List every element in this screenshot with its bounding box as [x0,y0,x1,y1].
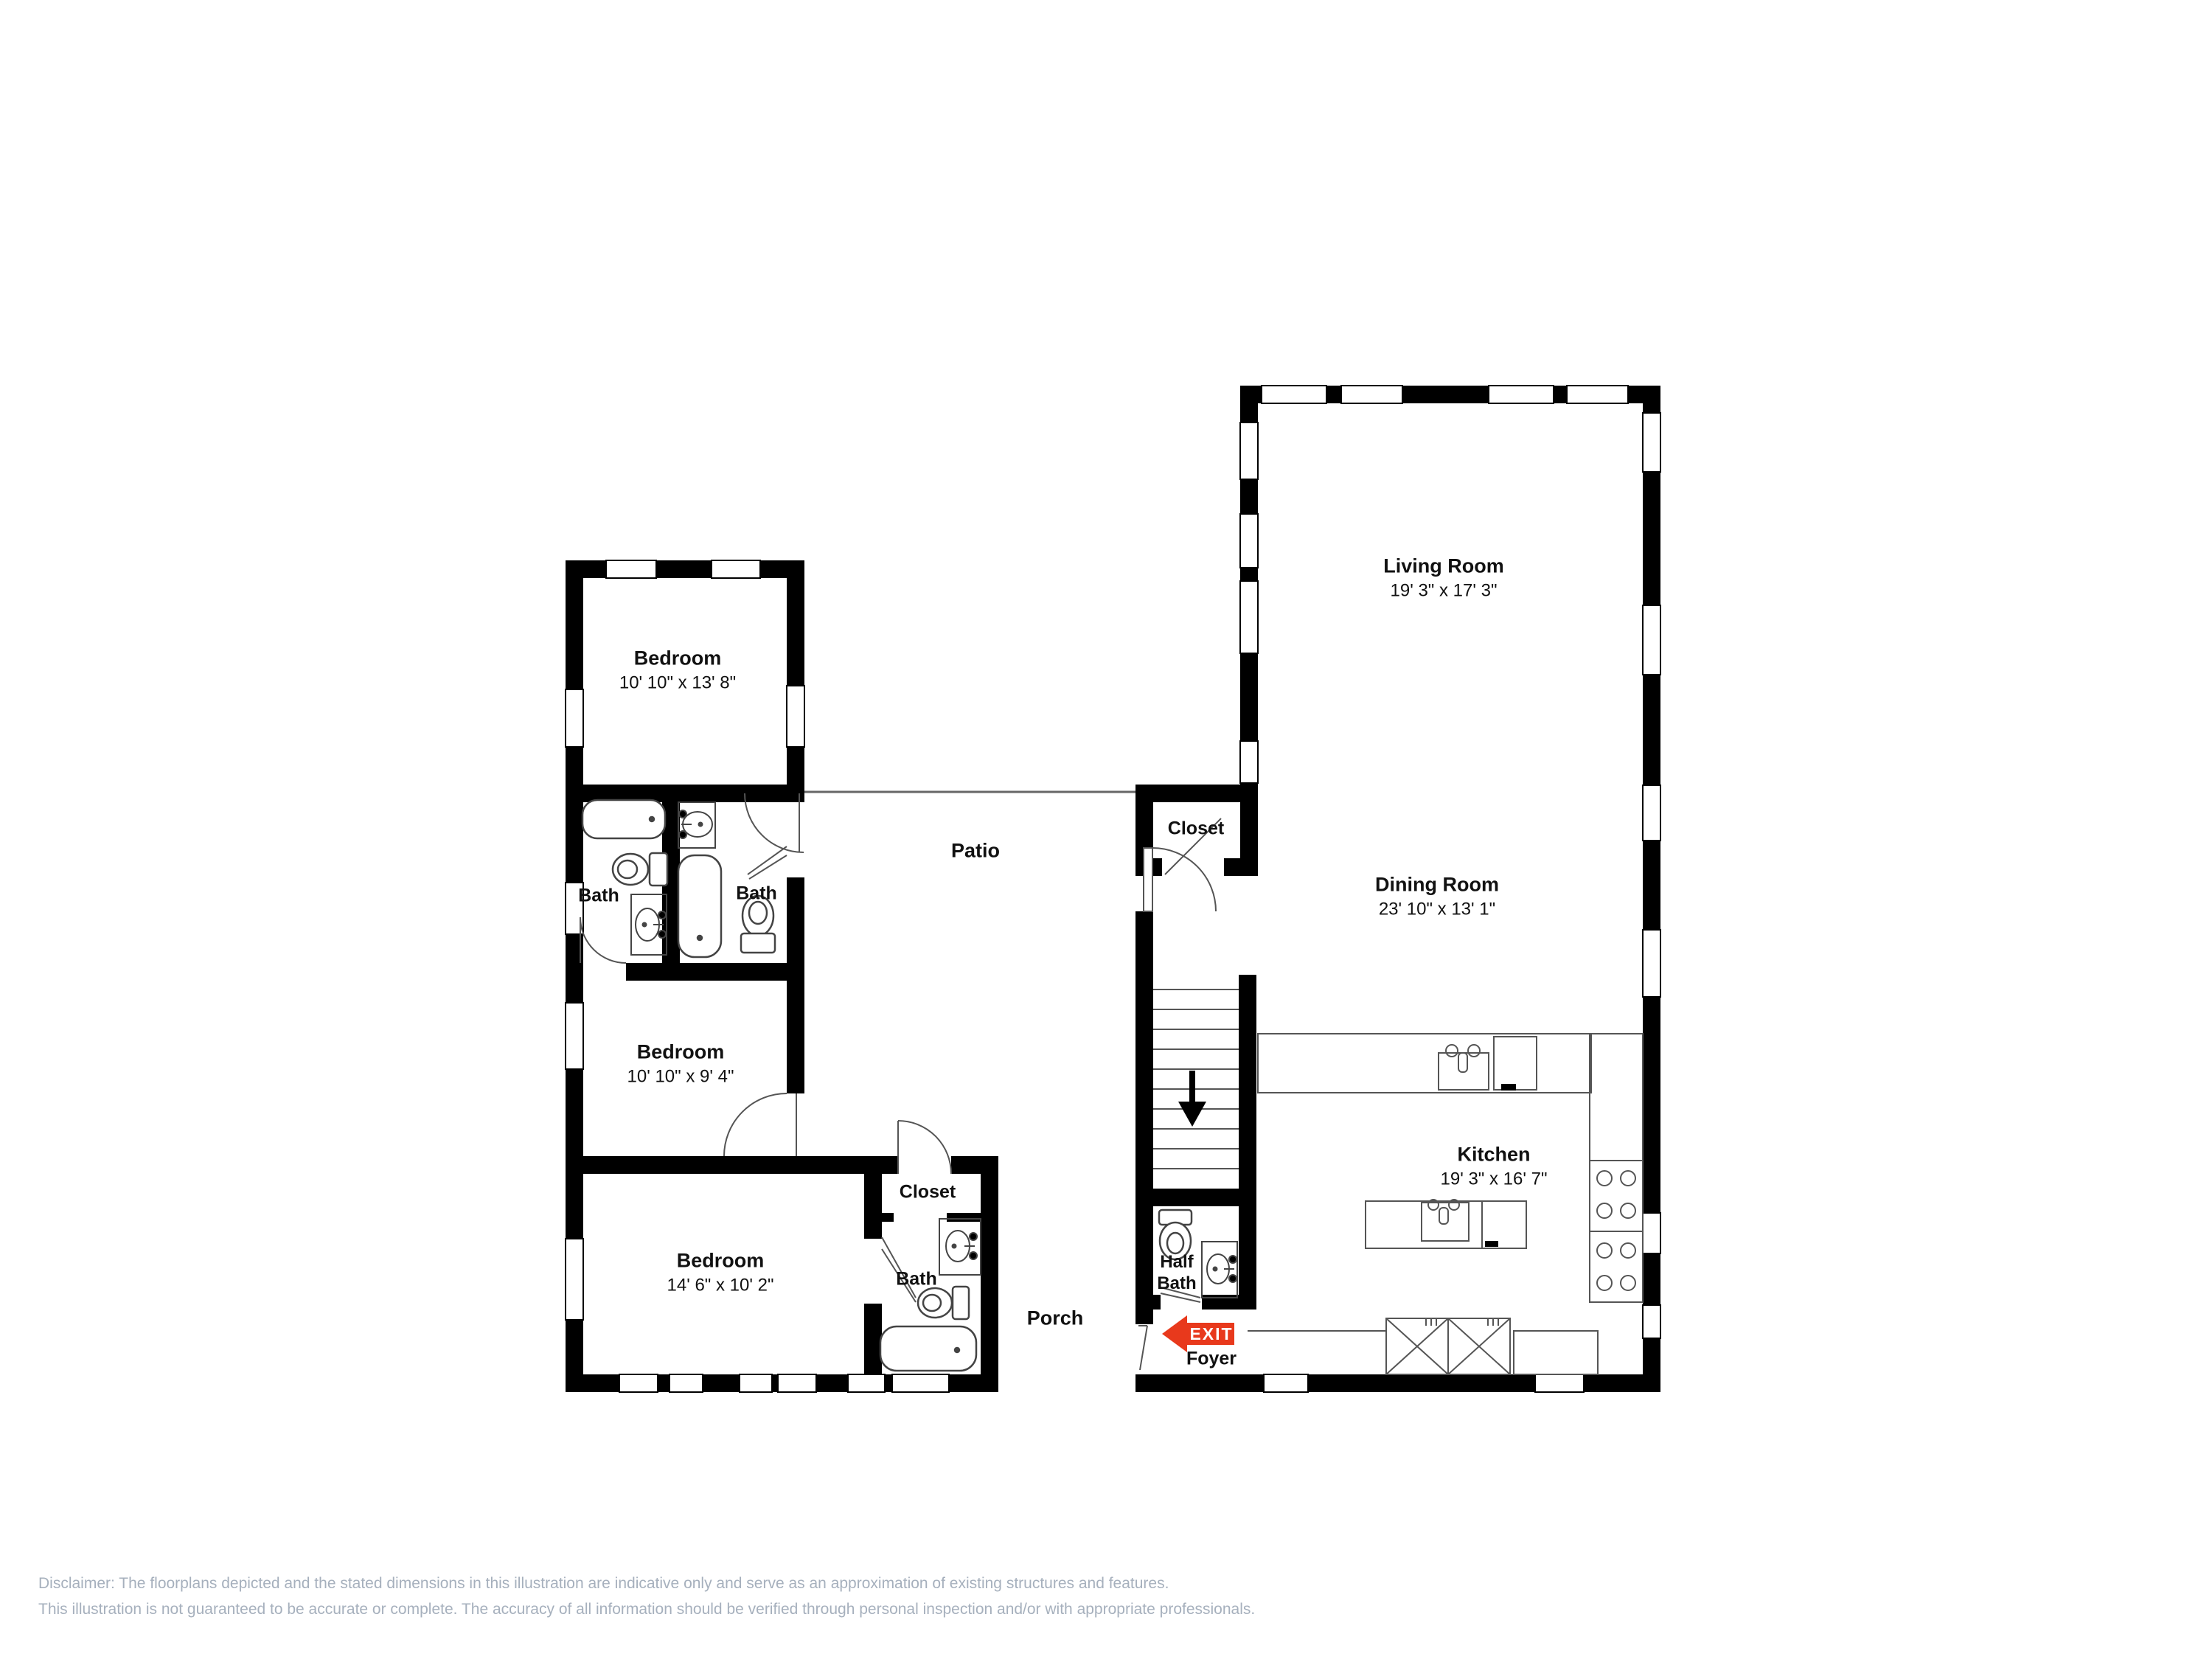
room-dims: 10' 10" x 9' 4" [627,1067,734,1088]
label-closet-upper: Closet [1168,818,1224,840]
disclaimer-line-1: Disclaimer: The floorplans depicted and … [38,1575,1169,1593]
room-label-bedroom-middle: Bedroom 10' 10" x 9' 4" [627,1041,734,1088]
sink-icon [678,802,715,848]
cabinet-icon [1386,1318,1510,1374]
cabinet-icon [1514,1331,1598,1374]
room-label-bedroom-bottom: Bedroom 14' 6" x 10' 2" [667,1250,774,1296]
stairs [1153,990,1239,1169]
stairs-down-arrow-icon [1178,1071,1206,1127]
counter [1258,1034,1591,1093]
room-name: Kitchen [1441,1144,1548,1166]
bathtub-icon [678,855,721,957]
exit-label: EXIT [1189,1324,1233,1343]
room-name: Living Room [1383,555,1504,578]
floorplan-drawing: EXIT [0,0,2212,1659]
room-label-dining-room: Dining Room 23' 10" x 13' 1" [1375,874,1499,920]
exit-sign: EXIT [1162,1315,1234,1352]
label-foyer: Foyer [1186,1349,1237,1370]
toilet-icon [613,853,667,886]
sink-icon [939,1219,981,1275]
kitchen-sink-icon [1439,1045,1489,1090]
room-dims: 19' 3" x 17' 3" [1383,581,1504,602]
label-half-bath: Half Bath [1145,1252,1208,1295]
bathtub-icon [582,800,665,838]
room-name: Bedroom [667,1250,774,1273]
room-label-kitchen: Kitchen 19' 3" x 16' 7" [1441,1144,1548,1190]
sink-icon [631,894,667,955]
room-name: Dining Room [1375,874,1499,897]
label-porch: Porch [1027,1307,1084,1330]
island-sink-icon [1422,1200,1469,1241]
stove-icon [1590,1161,1643,1302]
label-bath-left: Bath [578,886,619,907]
bathtub-icon [880,1326,976,1371]
disclaimer-line-2: This illustration is not guaranteed to b… [38,1601,1255,1618]
room-dims: 10' 10" x 13' 8" [619,673,736,694]
label-bath-right: Bath [736,883,777,905]
label-bath-bottom: Bath [896,1269,937,1290]
kitchen-fixtures [1248,1034,1643,1374]
refrigerator-icon [1590,1034,1643,1161]
room-dims: 14' 6" x 10' 2" [667,1276,774,1296]
toilet-icon [918,1287,969,1319]
label-patio: Patio [951,840,1000,863]
dishwasher-icon [1494,1037,1537,1091]
room-name: Bedroom [627,1041,734,1064]
toilet-icon [741,896,775,953]
room-dims: 19' 3" x 16' 7" [1441,1169,1548,1190]
room-label-bedroom-top: Bedroom 10' 10" x 13' 8" [619,647,736,694]
room-name: Bedroom [619,647,736,670]
room-dims: 23' 10" x 13' 1" [1375,900,1499,920]
label-closet-lower: Closet [900,1182,956,1203]
floorplan-canvas: EXIT Living Room 19' 3" x 17' 3" Dining … [0,0,2212,1659]
room-label-living-room: Living Room 19' 3" x 17' 3" [1383,555,1504,602]
